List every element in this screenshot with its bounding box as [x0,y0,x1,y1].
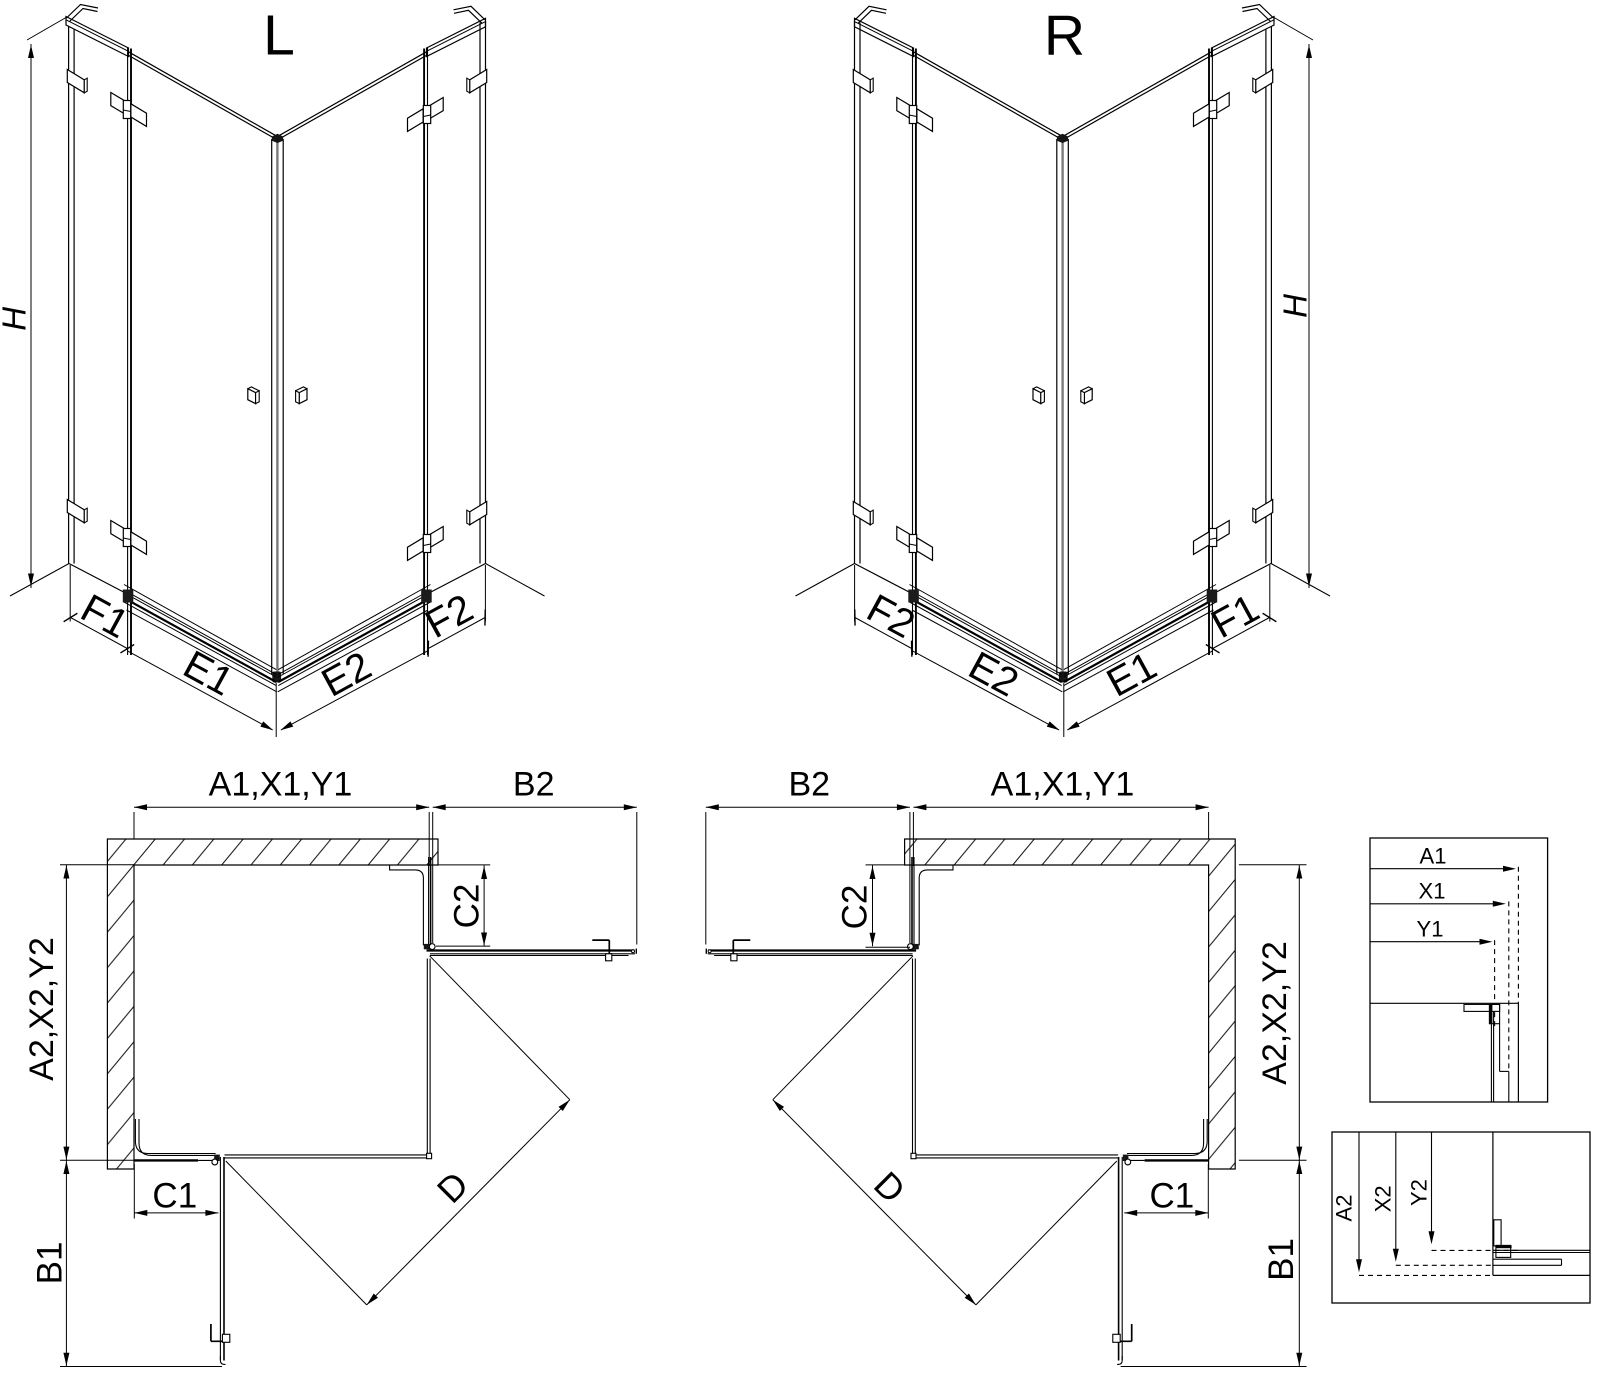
svg-text:A1,X1,Y1: A1,X1,Y1 [209,766,353,804]
svg-text:R: R [1044,4,1085,68]
svg-text:C1: C1 [152,1177,197,1216]
svg-text:L: L [263,4,295,68]
svg-text:C1: C1 [1150,1177,1195,1216]
svg-text:A2,X2,Y2: A2,X2,Y2 [23,937,61,1081]
svg-text:E2: E2 [315,644,379,706]
svg-text:H: H [0,307,33,331]
svg-text:H: H [1277,294,1314,318]
svg-text:A2,X2,Y2: A2,X2,Y2 [1256,941,1294,1085]
svg-text:E2: E2 [961,644,1025,706]
svg-text:X2: X2 [1371,1185,1396,1212]
svg-text:D: D [429,1163,476,1210]
svg-text:A2: A2 [1332,1195,1357,1222]
svg-text:X1: X1 [1419,879,1446,904]
svg-text:E1: E1 [1100,644,1164,706]
svg-text:A1,X1,Y1: A1,X1,Y1 [991,766,1135,804]
svg-text:C2: C2 [448,884,487,929]
svg-text:B2: B2 [789,766,831,804]
svg-text:A1: A1 [1420,844,1447,869]
svg-text:Y1: Y1 [1417,917,1444,942]
svg-text:D: D [866,1163,913,1210]
svg-text:B2: B2 [513,766,555,804]
svg-text:Y2: Y2 [1407,1179,1432,1206]
svg-text:C2: C2 [835,885,874,930]
svg-text:B1: B1 [31,1242,70,1285]
svg-text:B1: B1 [1262,1238,1301,1281]
